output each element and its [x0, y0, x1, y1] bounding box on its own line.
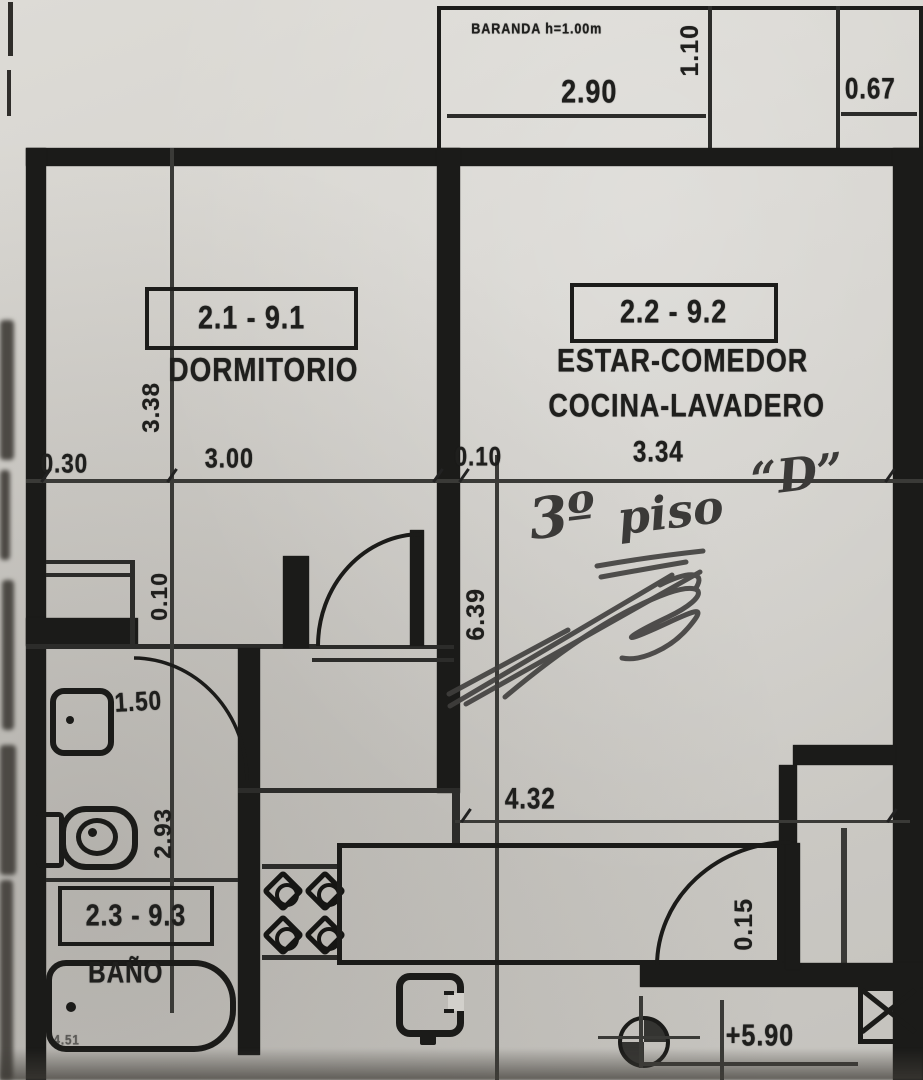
- room-label: ESTAR-COMEDOR: [543, 345, 822, 379]
- handwritten-text: “D”: [748, 442, 847, 507]
- door-leaf: [786, 843, 800, 969]
- balcony-table-divider: [836, 6, 840, 150]
- balcony-note: BARANDA h=1.00m: [464, 20, 610, 36]
- room-label: BAÑO: [84, 958, 168, 989]
- door-leaf: [410, 530, 424, 646]
- closet-line: [130, 560, 135, 648]
- stove-burner-icon: [264, 916, 302, 954]
- level-marker-axis: [598, 1036, 700, 1039]
- dim-label: 2.90: [558, 76, 620, 110]
- handwritten-floor-note: 3º piso “D”: [525, 449, 849, 553]
- washbasin-drain-icon: [66, 716, 74, 724]
- closet-line: [46, 560, 134, 564]
- dim-label: 0.67: [842, 74, 899, 105]
- dim-label: 3.00: [202, 443, 257, 474]
- wall-segment: [238, 788, 460, 793]
- dim-label: 1.10: [676, 24, 705, 77]
- wall-segment: [238, 648, 260, 1055]
- stove-edge: [262, 864, 340, 869]
- scanned-floor-plan: BARANDA h=1.00m 2.90 1.10 0.67 2.1 - 9.1…: [0, 0, 923, 1080]
- room-code-badge: 2.1 - 9.1: [145, 287, 358, 350]
- scan-smudge: [0, 320, 14, 460]
- dimension-line: [455, 820, 910, 823]
- scan-smudge: [0, 470, 10, 560]
- dim-label: 4.32: [502, 784, 559, 815]
- laundry-sink-drain-icon: [420, 1030, 436, 1045]
- room-label: COCINA-LAVADERO: [533, 390, 840, 424]
- dim-label: 0.10: [452, 443, 505, 472]
- dim-label: 3.34: [630, 437, 687, 468]
- bathtub-drain-icon: [66, 1002, 76, 1012]
- dim-label: 0.10: [146, 572, 173, 621]
- door-threshold: [312, 645, 454, 649]
- handwritten-text: piso: [614, 479, 726, 546]
- dim-label: 6.39: [462, 588, 491, 641]
- signature-stroke: [505, 588, 698, 697]
- wall-segment: [452, 793, 460, 845]
- kitchen-counter: [337, 843, 782, 965]
- toilet-bowl-icon: [76, 818, 118, 856]
- laundry-sink-notch: [444, 1009, 454, 1013]
- room-code-badge: 2.3 - 9.3: [58, 886, 214, 946]
- handwritten-text: 3º: [525, 479, 600, 553]
- signature-stroke: [660, 575, 699, 588]
- wall-segment: [640, 963, 923, 987]
- wall-segment: [893, 148, 923, 1080]
- door-swing-arc: [318, 534, 421, 646]
- column-marker-icon: [858, 986, 920, 1044]
- room-label: DORMITORIO: [158, 352, 369, 388]
- wall-segment: [26, 148, 923, 166]
- scan-mark: [8, 2, 13, 56]
- scan-shadow-band: [0, 1048, 923, 1080]
- wall-segment: [46, 878, 238, 882]
- stove-burner-icon: [264, 872, 302, 910]
- axis-line: [495, 455, 499, 1080]
- door-threshold: [312, 658, 454, 662]
- handwriting-slash-stroke: [466, 572, 700, 704]
- wall-segment: [841, 828, 847, 968]
- room-code-badge: 2.2 - 9.2: [570, 283, 778, 343]
- scan-mark: [7, 70, 11, 116]
- dimension-line: [447, 114, 706, 118]
- washbasin-icon: [50, 688, 114, 756]
- dim-label: 1.50: [111, 687, 165, 719]
- closet-line: [46, 573, 134, 577]
- balcony-table-divider: [708, 6, 712, 150]
- stove-edge: [262, 955, 340, 960]
- dim-label: 2.93: [150, 808, 178, 859]
- wall-segment: [26, 618, 138, 646]
- wall-segment: [793, 745, 895, 765]
- dim-label: 0.30: [38, 450, 91, 479]
- door-swing-arc: [134, 658, 247, 780]
- toilet-drain-icon: [88, 828, 97, 837]
- scan-smudge: [2, 580, 14, 730]
- laundry-sink-notch: [444, 991, 454, 995]
- handwriting-underline-stroke: [597, 551, 703, 566]
- scan-smudge: [0, 745, 16, 875]
- dim-label: 3.38: [138, 382, 166, 433]
- handwriting-underline-stroke: [601, 562, 686, 577]
- dimension-line: [841, 112, 917, 116]
- wall-segment: [26, 148, 46, 1080]
- wall-segment: [283, 556, 309, 648]
